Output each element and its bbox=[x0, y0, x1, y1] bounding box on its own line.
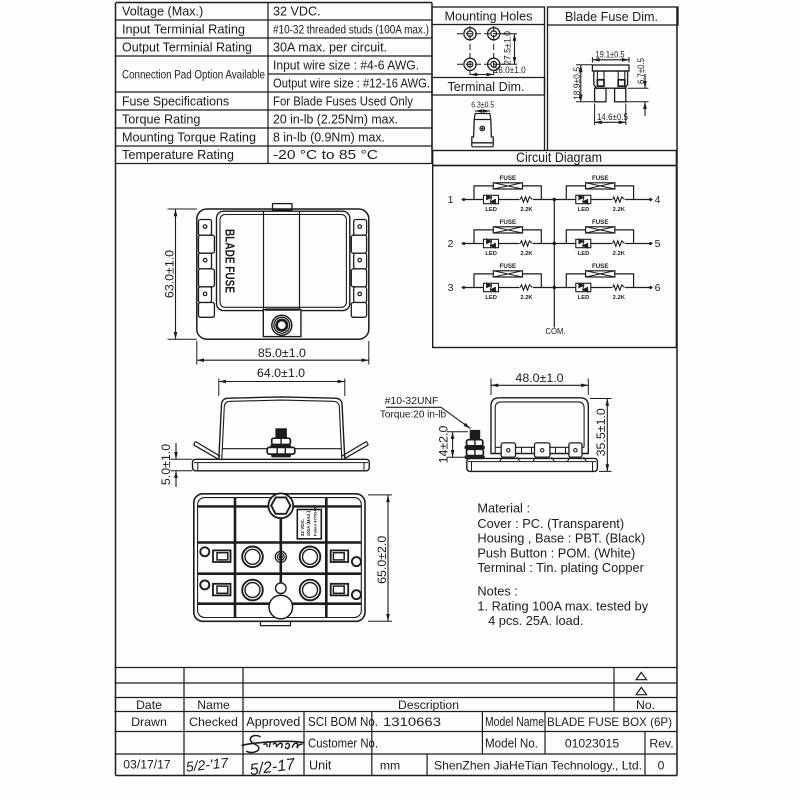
svg-text:Torque:20 in-lb: Torque:20 in-lb bbox=[380, 410, 447, 421]
svg-text:20 in-lb (2.25Nm) max.: 20 in-lb (2.25Nm) max. bbox=[273, 112, 398, 126]
svg-text:LED: LED bbox=[485, 207, 497, 213]
svg-text:BLADE FUSE BOX (6P): BLADE FUSE BOX (6P) bbox=[547, 715, 672, 729]
svg-text:LED: LED bbox=[578, 295, 590, 301]
svg-text:Notes :: Notes : bbox=[477, 583, 518, 598]
svg-text:Customer No.: Customer No. bbox=[308, 737, 378, 751]
svg-text:Output Terminial Rating: Output Terminial Rating bbox=[122, 40, 252, 54]
svg-text:2.2K: 2.2K bbox=[520, 207, 533, 213]
svg-text:Mounting Holes: Mounting Holes bbox=[445, 9, 533, 24]
svg-text:5: 5 bbox=[655, 238, 661, 250]
svg-text:63.0±1.0: 63.0±1.0 bbox=[163, 250, 177, 298]
svg-text:Voltage (Max.): Voltage (Max.) bbox=[122, 5, 203, 19]
svg-text:01023015: 01023015 bbox=[565, 737, 619, 751]
svg-text:2.2K: 2.2K bbox=[613, 251, 626, 257]
svg-text:2.2K: 2.2K bbox=[613, 207, 626, 213]
svg-text:Housing , Base : PBT. (Black): Housing , Base : PBT. (Black) bbox=[477, 531, 645, 546]
svg-text:2: 2 bbox=[448, 238, 454, 250]
svg-text:#10-32UNF: #10-32UNF bbox=[385, 396, 439, 407]
svg-text:Temperature Rating: Temperature Rating bbox=[122, 148, 234, 162]
svg-text:LED: LED bbox=[578, 251, 590, 257]
svg-text:LED: LED bbox=[485, 251, 497, 257]
svg-text:Model No.: Model No. bbox=[485, 737, 538, 751]
svg-text:Patent 4775145: Patent 4775145 bbox=[312, 507, 317, 537]
svg-text:Description: Description bbox=[398, 698, 459, 712]
svg-text:8 in-lb (0.9Nm) max.: 8 in-lb (0.9Nm) max. bbox=[273, 130, 385, 144]
svg-text:5.0±1.0: 5.0±1.0 bbox=[159, 444, 173, 485]
svg-text:Fuse Specifications: Fuse Specifications bbox=[122, 94, 229, 108]
svg-text:FUSE: FUSE bbox=[500, 219, 517, 226]
svg-text:14±2.0: 14±2.0 bbox=[436, 425, 450, 463]
svg-text:1. Rating 100A max. tested by: 1. Rating 100A max. tested by bbox=[477, 599, 648, 614]
svg-text:Drawn: Drawn bbox=[131, 715, 167, 729]
svg-text:FUSE: FUSE bbox=[500, 263, 517, 270]
svg-text:Mounting Torque Rating: Mounting Torque Rating bbox=[122, 130, 256, 144]
svg-text:14.6±0.5: 14.6±0.5 bbox=[597, 112, 628, 122]
svg-text:SCI BOM No.: SCI BOM No. bbox=[308, 715, 378, 729]
svg-text:35.5±1.0: 35.5±1.0 bbox=[594, 408, 608, 456]
svg-text:Checked: Checked bbox=[189, 715, 238, 729]
svg-text:mm: mm bbox=[380, 759, 400, 773]
svg-text:4 pcs. 25A. load.: 4 pcs. 25A. load. bbox=[488, 613, 583, 628]
svg-text:18.9±0.5: 18.9±0.5 bbox=[572, 67, 582, 100]
svg-text:03/17/17: 03/17/17 bbox=[123, 758, 171, 772]
svg-text:32 VDC.: 32 VDC. bbox=[300, 519, 305, 536]
svg-text:1: 1 bbox=[448, 194, 454, 206]
svg-text:#10-32 threaded studs (100A ma: #10-32 threaded studs (100A max.) bbox=[273, 22, 429, 36]
svg-text:Terminal : Tin. plating Copper: Terminal : Tin. plating Copper bbox=[477, 560, 644, 575]
svg-text:6: 6 bbox=[655, 282, 661, 294]
svg-text:FUSE: FUSE bbox=[592, 263, 609, 270]
svg-text:No.: No. bbox=[636, 698, 655, 712]
svg-text:6.7±0.5: 6.7±0.5 bbox=[636, 58, 646, 84]
svg-text:0: 0 bbox=[658, 759, 665, 773]
svg-text:Push Button : POM. (White): Push Button : POM. (White) bbox=[477, 545, 635, 560]
svg-text:Date: Date bbox=[136, 698, 162, 712]
svg-text:Circuit Diagram: Circuit Diagram bbox=[516, 149, 602, 165]
svg-text:100A (MAX.): 100A (MAX.) bbox=[306, 510, 311, 536]
svg-text:Terminal Dim.: Terminal Dim. bbox=[448, 79, 525, 94]
svg-text:65.0±2.0: 65.0±2.0 bbox=[375, 536, 389, 584]
svg-text:COM.: COM. bbox=[545, 327, 565, 336]
svg-text:Output wire size : #12-16 AWG.: Output wire size : #12-16 AWG. bbox=[273, 76, 430, 90]
svg-text:Name: Name bbox=[197, 698, 230, 712]
svg-text:48.0±1.0: 48.0±1.0 bbox=[515, 371, 563, 385]
svg-text:4: 4 bbox=[655, 194, 661, 206]
svg-text:BLADE FUSE: BLADE FUSE bbox=[222, 229, 237, 293]
svg-text:For Blade Fuses Used Only: For Blade Fuses Used Only bbox=[273, 94, 414, 108]
svg-text:Input Terminial Rating: Input Terminial Rating bbox=[122, 22, 245, 36]
svg-text:LED: LED bbox=[485, 295, 497, 301]
svg-text:FUSE: FUSE bbox=[500, 175, 517, 182]
svg-text:ShenZhen JiaHeTian Technology.: ShenZhen JiaHeTian Technology., Ltd. bbox=[434, 759, 642, 773]
svg-text:Input wire size : #4-6 AWG.: Input wire size : #4-6 AWG. bbox=[273, 58, 419, 72]
svg-text:FUSE: FUSE bbox=[592, 175, 609, 182]
svg-text:LED: LED bbox=[578, 207, 590, 213]
svg-text:2.2K: 2.2K bbox=[613, 295, 626, 301]
svg-text:30A max. per circuit.: 30A max. per circuit. bbox=[273, 40, 387, 54]
svg-text:Material :: Material : bbox=[477, 500, 530, 515]
svg-text:2.2K: 2.2K bbox=[520, 251, 533, 257]
svg-text:6.3±0.5: 6.3±0.5 bbox=[471, 101, 494, 110]
svg-text:Approved: Approved bbox=[246, 714, 300, 729]
svg-text:32 VDC.: 32 VDC. bbox=[273, 5, 321, 19]
svg-text:3: 3 bbox=[448, 282, 454, 294]
svg-text:27.5±1.0: 27.5±1.0 bbox=[503, 31, 513, 65]
svg-text:Blade Fuse Dim.: Blade Fuse Dim. bbox=[565, 9, 658, 24]
svg-text:16.0±1.0: 16.0±1.0 bbox=[494, 65, 526, 75]
svg-text:1310663: 1310663 bbox=[383, 715, 441, 729]
svg-text:Model Name: Model Name bbox=[485, 715, 544, 729]
svg-text:2.2K: 2.2K bbox=[520, 295, 533, 301]
svg-text:Cover : PC. (Transparent): Cover : PC. (Transparent) bbox=[477, 516, 624, 531]
svg-text:Unit: Unit bbox=[309, 759, 332, 773]
svg-text:Connection Pad Option Availabl: Connection Pad Option Available bbox=[122, 67, 265, 81]
svg-text:Torque Rating: Torque Rating bbox=[122, 112, 200, 126]
svg-text:19.1±0.5: 19.1±0.5 bbox=[596, 50, 625, 60]
svg-text:85.0±1.0: 85.0±1.0 bbox=[258, 346, 306, 360]
svg-text:-20 °C to 85 °C: -20 °C to 85 °C bbox=[273, 148, 378, 162]
svg-text:64.0±1.0: 64.0±1.0 bbox=[257, 366, 305, 380]
svg-text:FUSE: FUSE bbox=[592, 219, 609, 226]
svg-text:Rev.: Rev. bbox=[649, 737, 673, 751]
